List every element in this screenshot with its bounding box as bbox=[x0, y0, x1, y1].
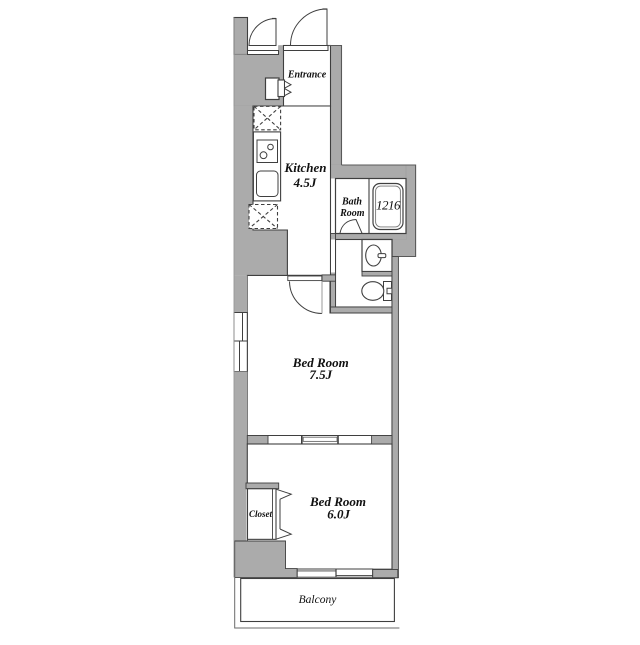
svg-text:Kitchen: Kitchen bbox=[284, 160, 327, 175]
svg-text:7.5J: 7.5J bbox=[309, 367, 332, 382]
svg-text:Balcony: Balcony bbox=[299, 594, 338, 606]
svg-text:6.0J: 6.0J bbox=[327, 506, 350, 521]
svg-text:4.5J: 4.5J bbox=[293, 175, 317, 190]
svg-text:Closet: Closet bbox=[249, 509, 273, 519]
svg-text:Room: Room bbox=[339, 208, 365, 219]
svg-text:Bath: Bath bbox=[341, 196, 362, 207]
svg-text:Entrance: Entrance bbox=[287, 69, 327, 80]
svg-text:1216: 1216 bbox=[376, 197, 401, 212]
